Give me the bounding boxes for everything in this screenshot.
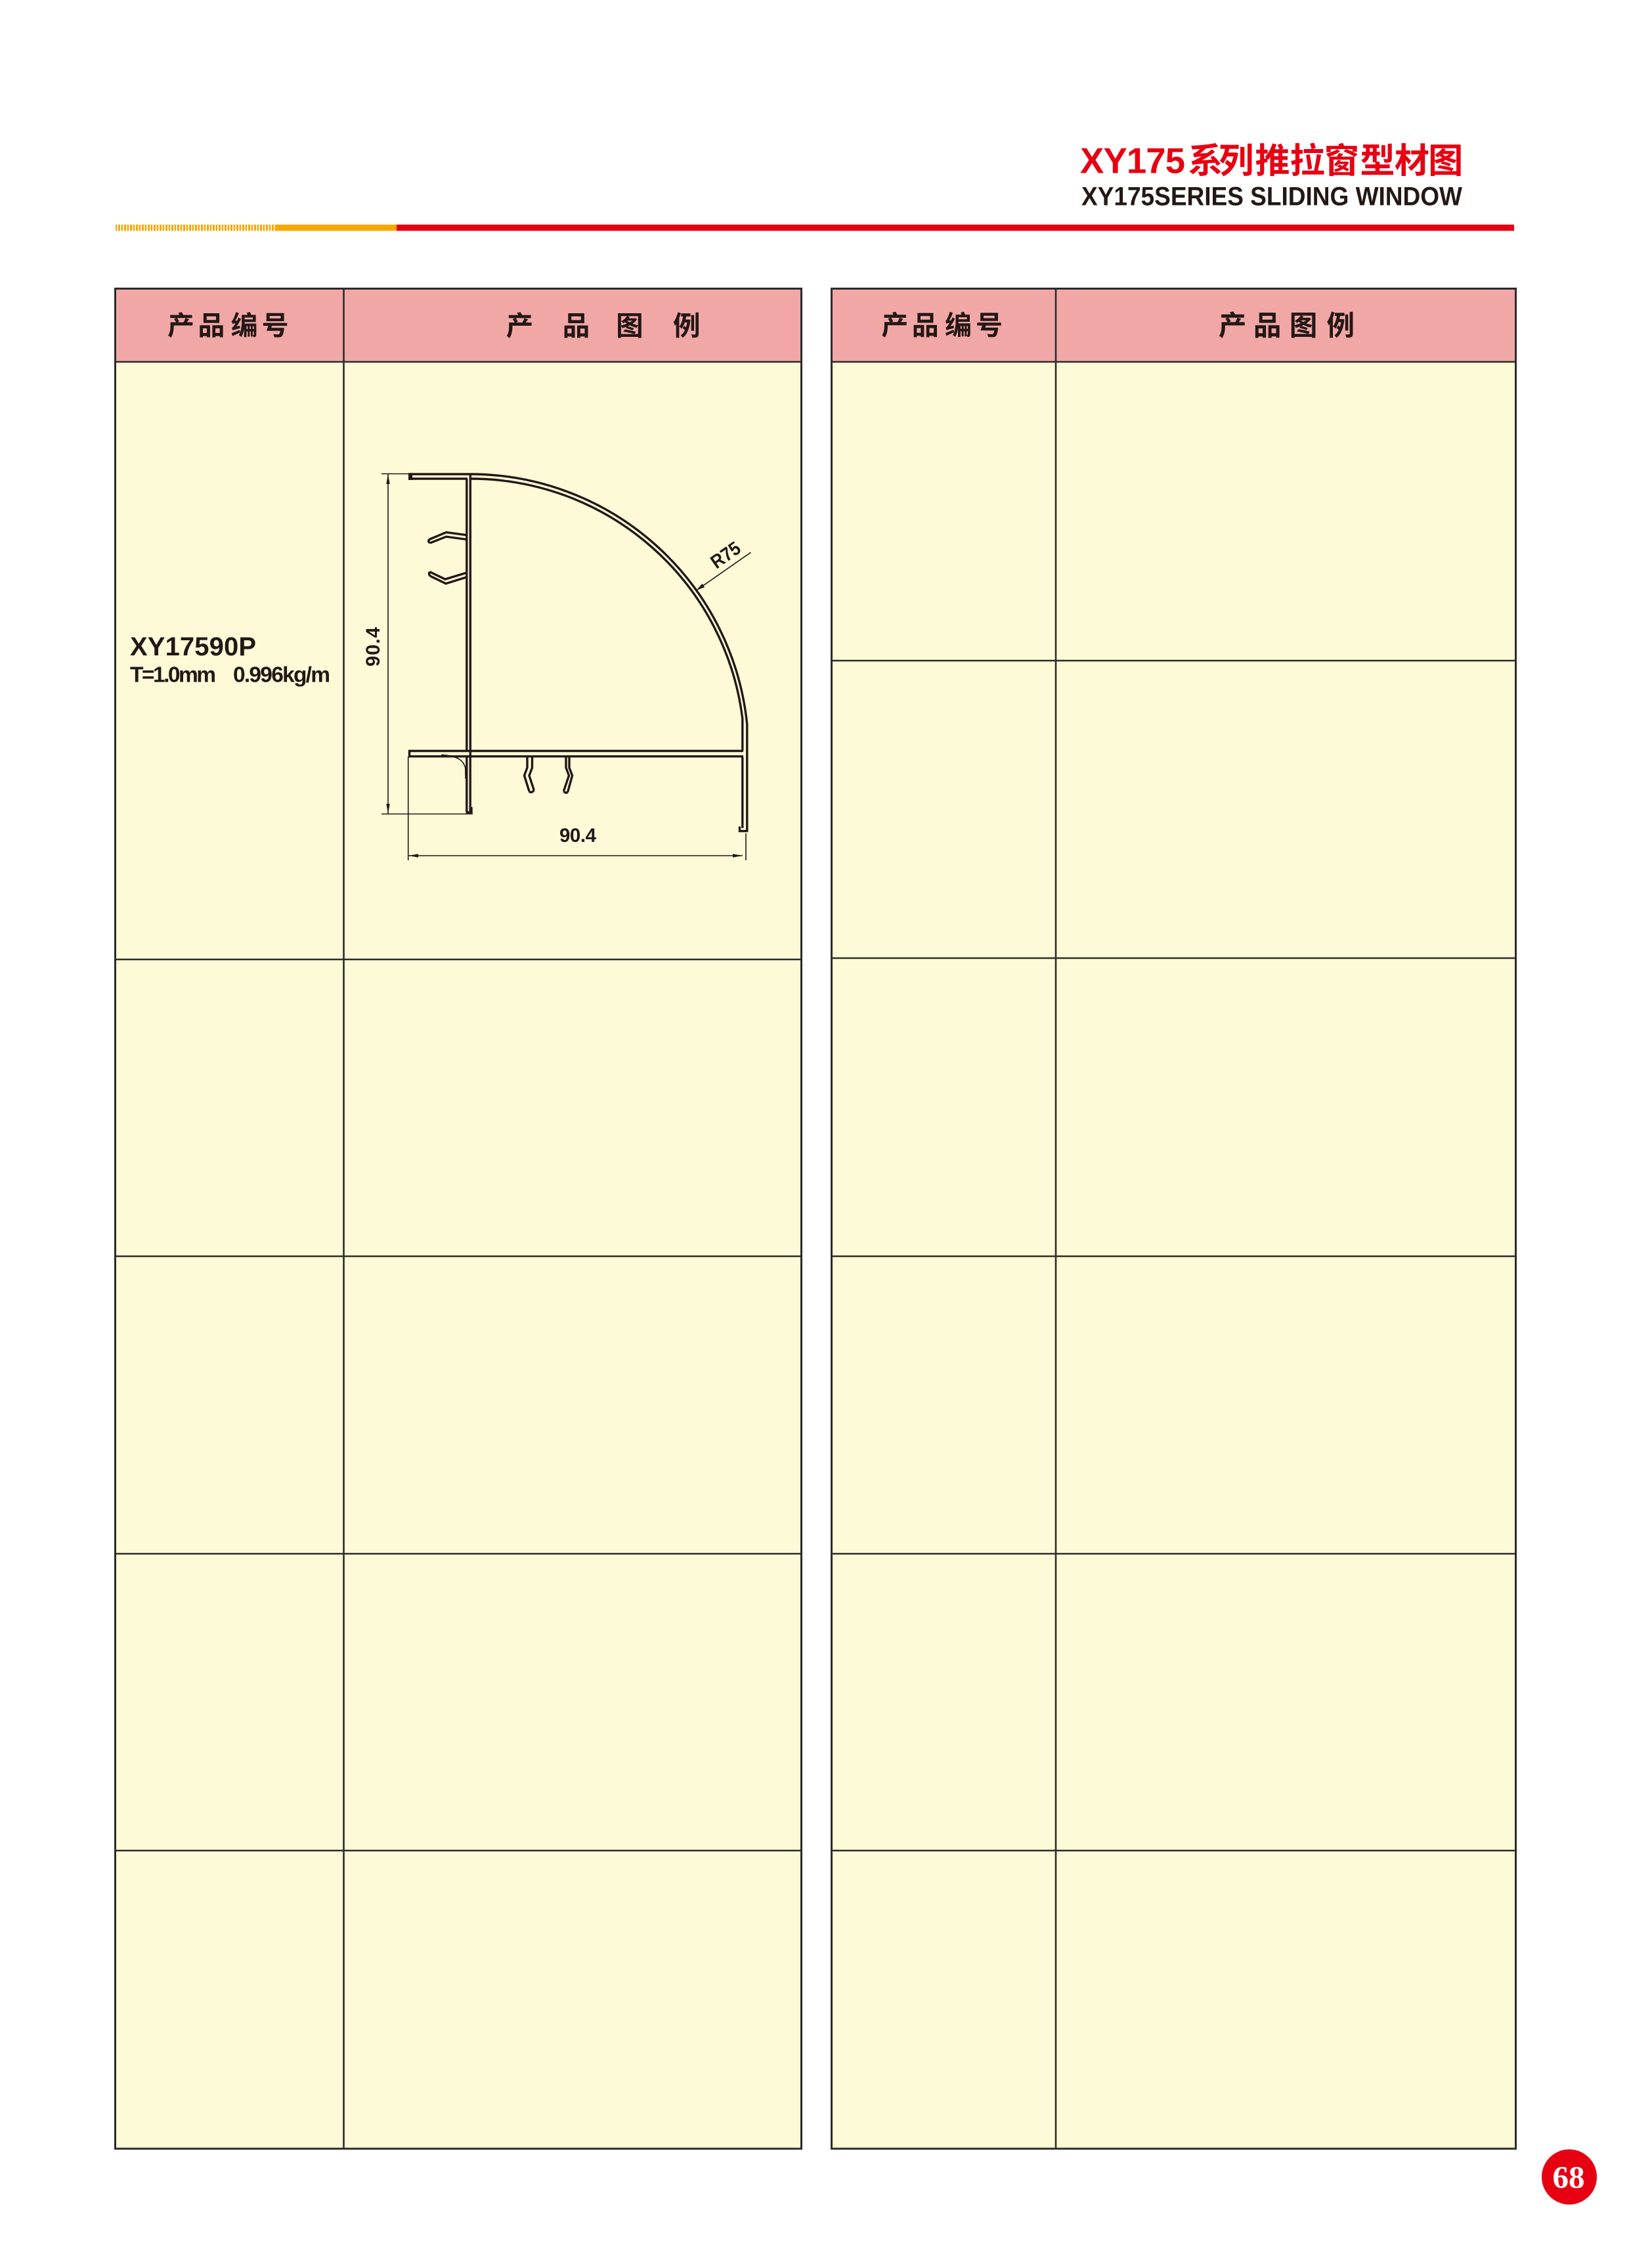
- svg-text:T=1.0mm: T=1.0mm: [130, 663, 216, 688]
- svg-text:XY17590P: XY17590P: [130, 632, 256, 661]
- svg-text:90.4: 90.4: [559, 825, 597, 846]
- svg-text:XY175SERIES SLIDING WINDOW: XY175SERIES SLIDING WINDOW: [1081, 183, 1462, 211]
- svg-text:68: 68: [1553, 2161, 1585, 2195]
- svg-text:XY175: XY175: [1080, 141, 1185, 181]
- svg-text:90.4: 90.4: [362, 626, 384, 667]
- svg-text:0.996kg/m: 0.996kg/m: [233, 663, 330, 688]
